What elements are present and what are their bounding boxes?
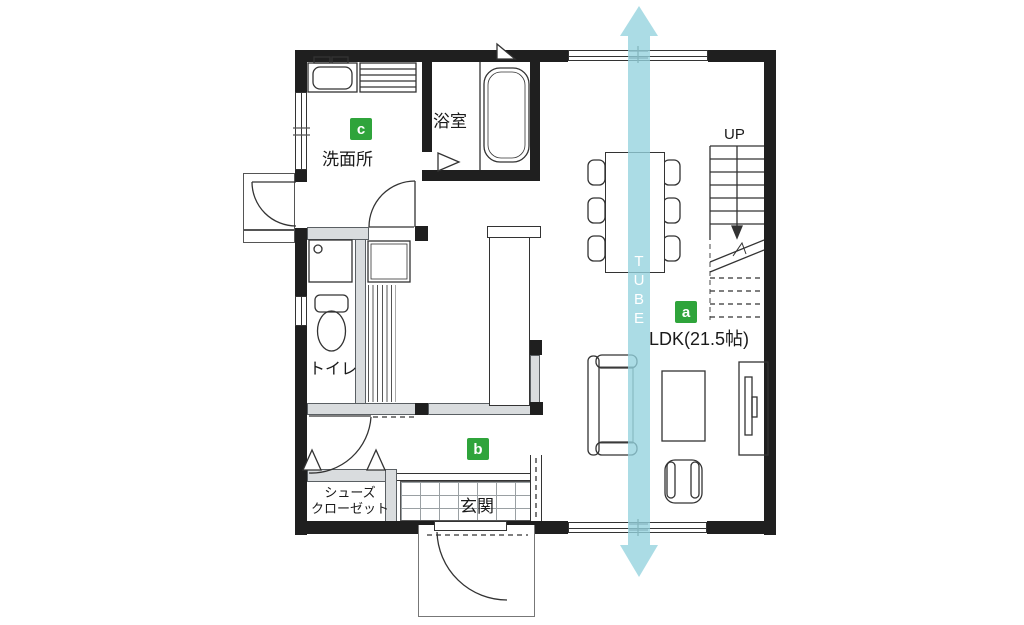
tube-arrowhead-down (620, 545, 658, 577)
coffee-table (662, 371, 705, 441)
floor-plan: 浴室 洗面所 トイレ 玄関 シューズ クローゼット LDK(21.5帖) UP … (0, 0, 1024, 625)
tv-board (739, 362, 768, 455)
kitchen-counter (489, 238, 530, 406)
tube-letter-t: T (634, 252, 643, 271)
toilet-fixture (315, 295, 348, 351)
washing-machine (308, 57, 357, 92)
corridor-cabinet (368, 241, 410, 282)
closet-door-pivot-right (367, 450, 385, 470)
label-washroom: 洗面所 (322, 145, 373, 170)
bathtub (480, 62, 529, 170)
label-bathroom: 浴室 (433, 107, 467, 132)
kitchen-counter-top (487, 226, 541, 238)
marker-b: b (467, 438, 489, 460)
label-up: UP (724, 126, 745, 143)
toilet-hand-basin (309, 240, 352, 282)
closet-door-pivot-left (303, 450, 321, 470)
pantry-shelf-stripes (368, 285, 396, 402)
armchair (665, 460, 702, 503)
tube-arrowhead-up (620, 6, 658, 36)
stairs (710, 146, 764, 320)
tube-letter-u: U (634, 271, 645, 290)
linen-shelf (360, 63, 416, 92)
marker-a: a (675, 301, 697, 323)
washroom-door (369, 181, 415, 227)
bathroom-folding-door (438, 153, 459, 171)
label-shoe-closet-line1: シューズ (303, 485, 397, 501)
label-shoe-closet-line2: クローゼット (303, 501, 397, 517)
entrance-door-swing (437, 532, 507, 600)
tube-letter-b: B (634, 290, 644, 309)
tube-label: T U B E (628, 252, 650, 328)
label-toilet: トイレ (309, 355, 357, 379)
bathroom-vent (497, 44, 515, 59)
label-entrance: 玄関 (460, 492, 494, 517)
label-shoe-closet: シューズ クローゼット (303, 485, 397, 517)
side-door (252, 182, 296, 226)
tube-letter-e: E (634, 309, 644, 328)
label-ldk: LDK(21.5帖) (649, 325, 749, 351)
marker-c: c (350, 118, 372, 140)
